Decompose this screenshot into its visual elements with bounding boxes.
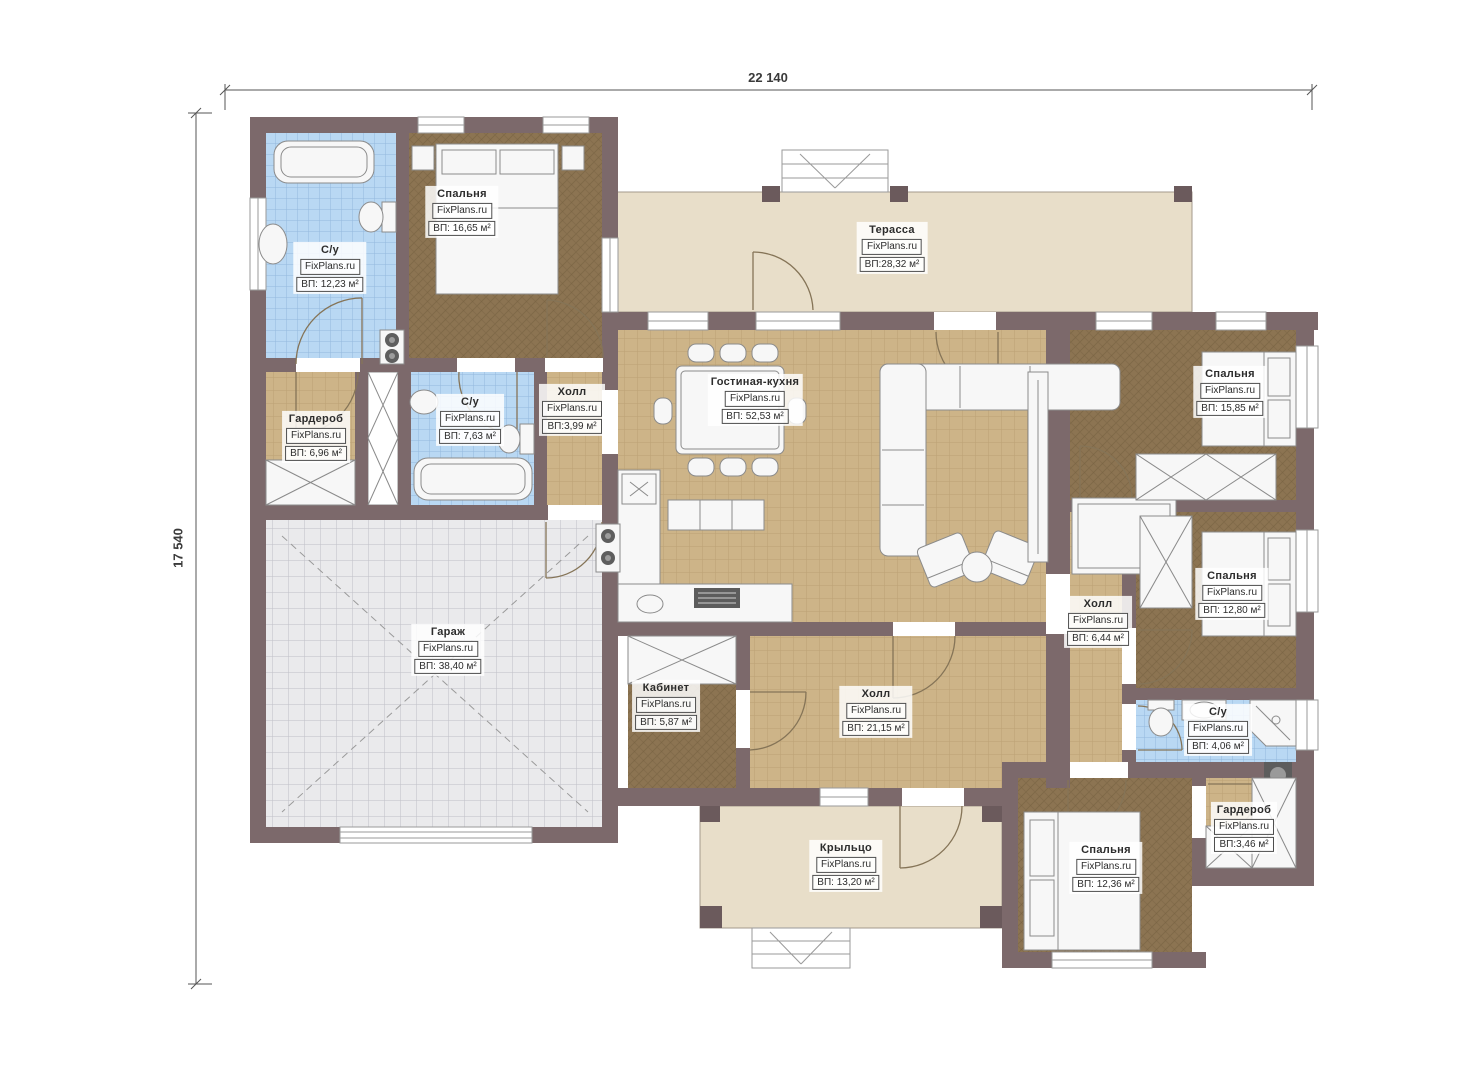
floor-plan-page: 22 140 17 540 С/у FixPlans.ru ВП: 12,23 … bbox=[0, 0, 1474, 1080]
garage-door bbox=[340, 827, 532, 843]
dimension-width-label: 22 140 bbox=[748, 71, 788, 84]
toilet-2-tank bbox=[520, 424, 534, 454]
sink-2 bbox=[410, 390, 438, 414]
closet-strip bbox=[368, 372, 398, 505]
room-label-bedroom-4: Спальня FixPlans.ru ВП: 12,36 м² bbox=[1069, 842, 1142, 894]
terrace-steps bbox=[782, 150, 888, 192]
room-label-hall-2: Холл FixPlans.ru ВП: 6,44 м² bbox=[1064, 596, 1132, 648]
sink-1 bbox=[259, 224, 287, 264]
room-label-cabinet: Кабинет FixPlans.ru ВП: 5,87 м² bbox=[632, 680, 700, 732]
room-label-hall-3: Холл FixPlans.ru ВП: 21,15 м² bbox=[839, 686, 912, 738]
dimension-height-label: 17 540 bbox=[172, 528, 185, 568]
room-label-bathroom-1: С/у FixPlans.ru ВП: 12,23 м² bbox=[293, 242, 366, 294]
floor-plan-drawing bbox=[0, 0, 1474, 1080]
room-label-living-kitchen: Гостиная-кухня FixPlans.ru ВП: 52,53 м² bbox=[708, 374, 803, 426]
toilet-3 bbox=[1149, 708, 1173, 736]
room-label-bathroom-2: С/у FixPlans.ru ВП: 7,63 м² bbox=[436, 394, 504, 446]
room-label-hall-1: Холл FixPlans.ru ВП:3,99 м² bbox=[539, 384, 605, 436]
nightstand bbox=[412, 146, 434, 170]
room-label-bedroom-2: Спальня FixPlans.ru ВП: 15,85 м² bbox=[1193, 366, 1266, 418]
room-label-bedroom-3: Спальня FixPlans.ru ВП: 12,80 м² bbox=[1195, 568, 1268, 620]
room-label-wardrobe-1: Гардероб FixPlans.ru ВП: 6,96 м² bbox=[282, 411, 350, 463]
toilet-1-tank bbox=[382, 202, 396, 232]
wardrobe-strip bbox=[1136, 454, 1276, 500]
porch-steps bbox=[752, 928, 850, 968]
side-table bbox=[962, 552, 992, 582]
room-label-bathroom-3: С/у FixPlans.ru ВП: 4,06 м² bbox=[1184, 704, 1252, 756]
nightstand bbox=[562, 146, 584, 170]
room-label-terrace: Терасса FixPlans.ru ВП:28,32 м² bbox=[857, 222, 928, 274]
room-label-bedroom-1: Спальня FixPlans.ru ВП: 16,65 м² bbox=[425, 186, 498, 238]
room-label-porch: Крыльцо FixPlans.ru ВП: 13,20 м² bbox=[809, 840, 882, 892]
toilet-1 bbox=[359, 202, 383, 232]
kitchen-island bbox=[668, 500, 764, 530]
room-label-wardrobe-2: Гардероб FixPlans.ru ВП:3,46 м² bbox=[1211, 802, 1277, 854]
room-label-garage: Гараж FixPlans.ru ВП: 38,40 м² bbox=[411, 624, 484, 676]
